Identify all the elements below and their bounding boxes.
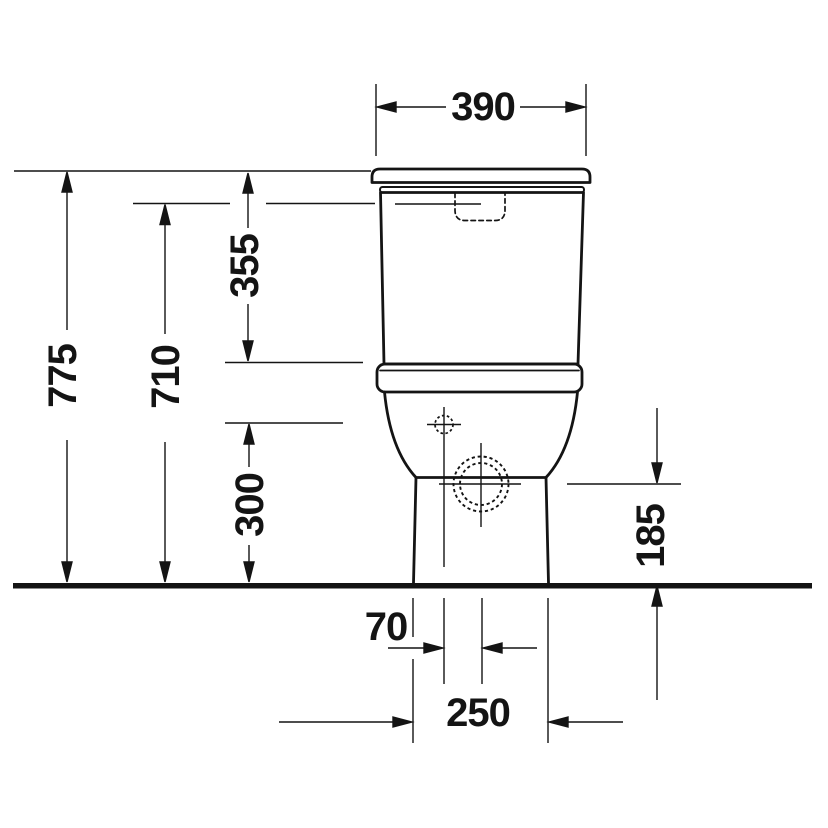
arrowhead-up: [652, 586, 662, 606]
arrowhead-down: [243, 341, 253, 361]
bowl-rim: [377, 364, 582, 392]
arrowhead-up: [243, 173, 253, 193]
label-height-flush: 710: [144, 345, 188, 409]
arrowhead-left: [483, 643, 502, 653]
bowl-right-contour: [546, 392, 578, 478]
label-height-outlet: 185: [629, 503, 673, 567]
arrowhead-down: [160, 562, 170, 582]
flush-button-recess: [455, 193, 505, 221]
label-height-inlet: 300: [228, 473, 272, 537]
ground-line: [13, 583, 812, 589]
arrowhead-up: [244, 424, 254, 444]
technical-drawing-canvas: 390 775 710 355 300 185 70 250: [0, 0, 828, 828]
arrowhead-down: [652, 463, 662, 483]
label-width-base: 250: [446, 691, 510, 735]
bowl-left-contour: [385, 392, 417, 478]
arrowhead-down: [244, 562, 254, 582]
label-height-cistern: 355: [223, 233, 267, 297]
label-offset-outlet: 70: [365, 605, 408, 649]
arrowhead-up: [160, 205, 170, 225]
arrowhead-down: [62, 562, 72, 582]
arrowhead-left: [377, 102, 396, 112]
toilet-dimension-diagram: 390 775 710 355 300 185 70 250: [0, 0, 828, 828]
connection-holes: [427, 407, 521, 567]
cistern-lid: [372, 169, 590, 183]
label-height-overall: 775: [41, 343, 85, 407]
label-width-top: 390: [451, 85, 515, 129]
arrowhead-left: [549, 717, 568, 727]
arrowhead-right: [424, 643, 443, 653]
cistern-body: [381, 193, 584, 365]
arrowhead-right: [566, 102, 585, 112]
arrowhead-up: [62, 172, 72, 192]
arrowhead-right: [393, 717, 412, 727]
dim-70-outlet-offset: [388, 598, 537, 684]
